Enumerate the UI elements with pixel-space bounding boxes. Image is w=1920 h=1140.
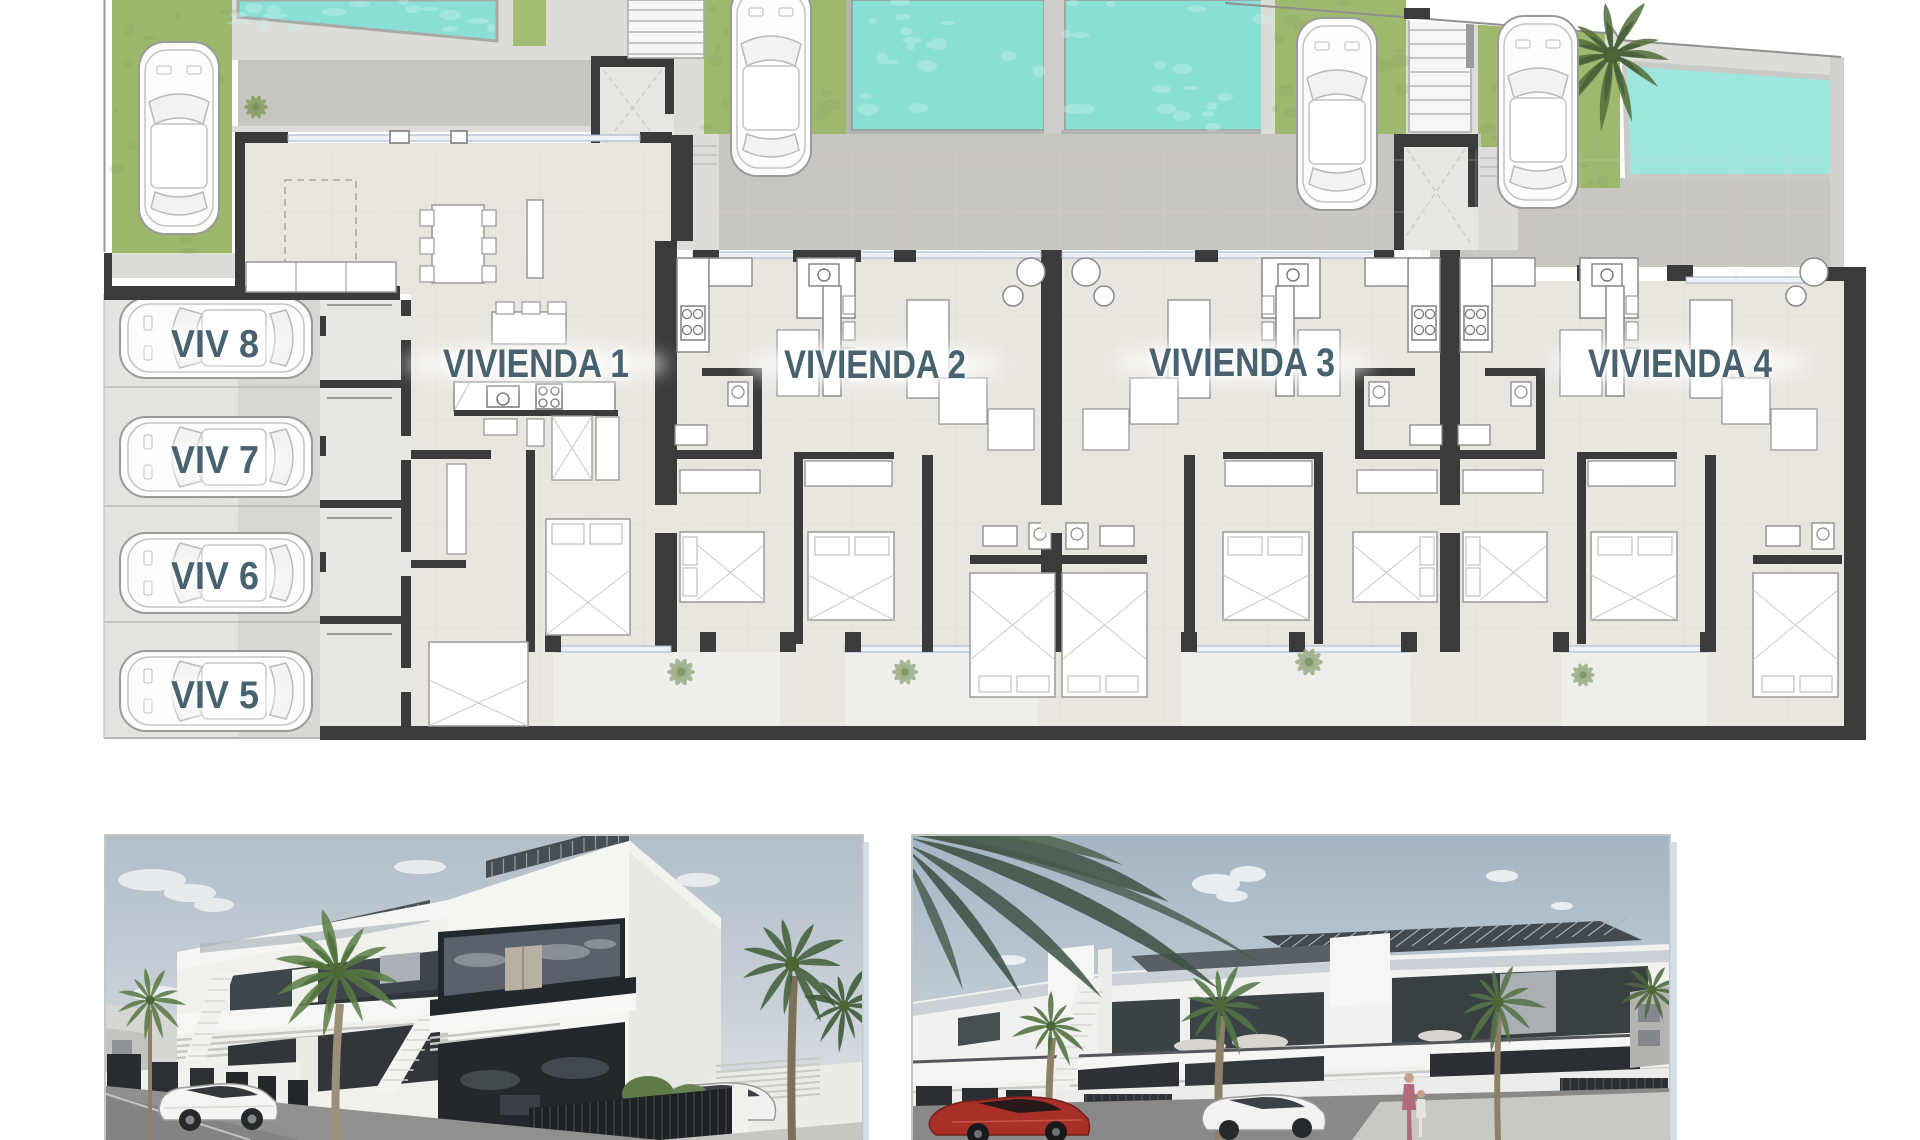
svg-text:VIV 8: VIV 8: [171, 323, 259, 366]
svg-text:VIVIENDA 1: VIVIENDA 1: [443, 342, 629, 386]
svg-text:VIVIENDA 3: VIVIENDA 3: [1149, 341, 1335, 385]
svg-text:VIV 5: VIV 5: [171, 674, 259, 717]
svg-text:VIV 7: VIV 7: [171, 439, 259, 482]
svg-text:VIVIENDA 2: VIVIENDA 2: [784, 343, 966, 387]
svg-text:VIV 6: VIV 6: [171, 555, 259, 598]
svg-text:VIVIENDA 4: VIVIENDA 4: [1588, 342, 1773, 386]
